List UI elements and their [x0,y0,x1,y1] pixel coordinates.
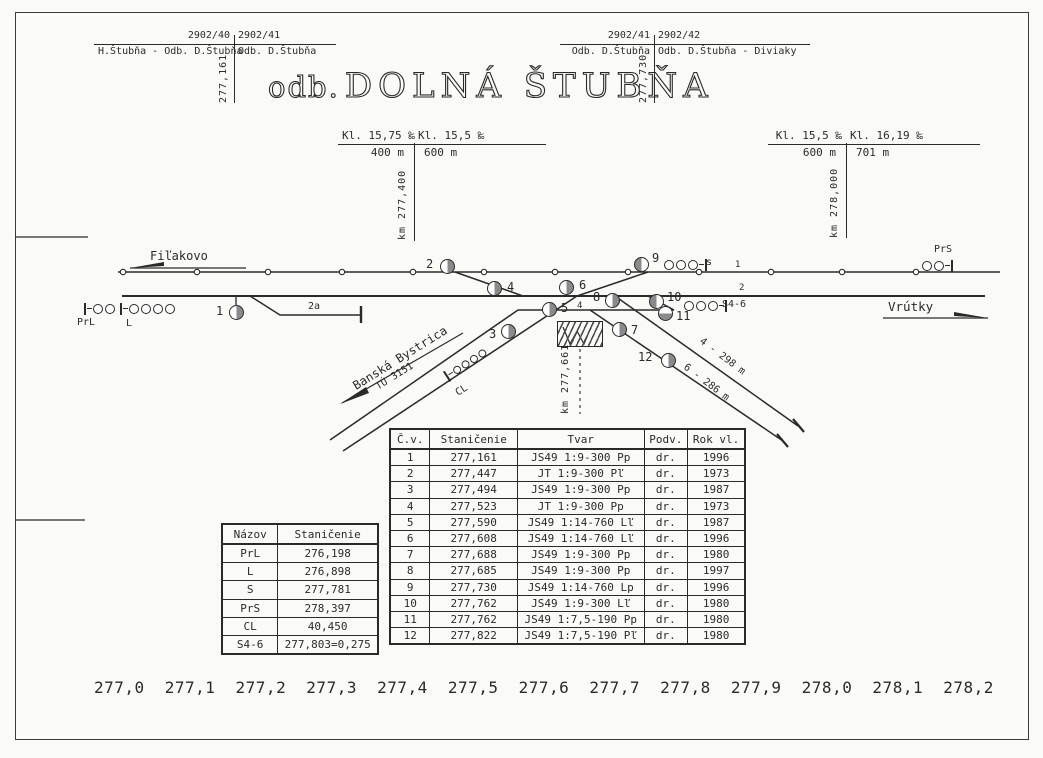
table-cell: JS49 1:7,5-190 Pľ [518,628,645,645]
signal-table: NázovStaničeniePrL276,198L276,898S277,78… [221,523,379,655]
signal-lamp [676,260,686,270]
title-name: DOLNÁ ŠTUBŇA [345,66,714,106]
signal-l-label: L [126,319,132,329]
km-scale-label: 278,2 [943,678,994,697]
switch-symbol-7 [612,322,627,337]
table-row: 6277,608JS49 1:14-760 Lľdr.1996 [390,530,745,546]
switch-number: 10 [667,291,681,303]
table-cell: S4-6 [222,635,278,654]
km-scale-label: 277,2 [236,678,287,697]
km-scale-label: 277,1 [165,678,216,697]
table-cell: 6 [390,530,430,546]
signal-lamp [664,260,674,270]
column-header: Č.v. [390,429,430,449]
table-cell: 1997 [688,563,745,579]
switch-number: 2 [426,258,433,270]
switch-table: Č.v.StaničenieTvarPodv.Rok vl.1277,161JS… [389,428,746,645]
table-cell: 1987 [688,482,745,498]
table-cell: 1996 [688,449,745,466]
signal-lamp [93,304,103,314]
table-row: 10277,762JS49 1:9-300 Lľdr.1980 [390,595,745,611]
switch-number: 5 [561,302,568,314]
signal-lamp [934,261,944,271]
gradient-length: 600 m [414,145,546,161]
signal-lamp [141,304,151,314]
gradient-value: Kl. 15,75 ‰ [338,128,414,145]
switch-number: 1 [216,305,223,317]
table-cell: dr. [644,628,688,645]
data-table: NázovStaničeniePrL276,198L276,898S277,78… [221,523,379,655]
gradient-marker-right: Kl. 15,5 ‰ Kl. 16,19 ‰ 600 m 701 m km 27… [768,128,980,161]
signal-mast [84,303,86,315]
route-number: 2902/41 [234,29,336,45]
km-scale-label: 277,9 [731,678,782,697]
header-row: Č.v.StaničenieTvarPodv.Rok vl. [390,429,745,449]
signal-l [120,302,175,315]
table-cell: JT 1:9-300 Pp [518,498,645,514]
route-number: 2902/42 [654,29,810,45]
route-boundary-line [234,35,235,103]
arrow-east-head [954,312,988,318]
table-cell: 3 [390,482,430,498]
km-scale-label: 277,0 [94,678,145,697]
table-cell: 7 [390,547,430,563]
signal-lamp [688,260,698,270]
level-crossing-km: km 277,661 [560,352,571,414]
buffer-stop-stub6 [777,434,788,447]
margin-ticks [15,237,88,520]
table-cell: 277,685 [430,563,518,579]
table-cell: 277,762 [430,611,518,627]
track-label-4: 4 [577,302,582,311]
signal-prs-label: PrS [934,245,952,255]
table-cell: 1980 [688,611,745,627]
signal-lamp [105,304,115,314]
signal-arm [87,308,92,310]
table-cell: dr. [644,611,688,627]
switch-symbol-1 [229,305,244,320]
table-cell: 1996 [688,579,745,595]
table-cell: 1973 [688,498,745,514]
table-row: PrS278,397 [222,599,378,617]
switch-symbol-12 [661,353,676,368]
direction-east-label: Vrútky [888,301,933,314]
route-marker-left: 2902/40 2902/41 H.Štubňa - Odb. D.Štubňa… [94,29,336,59]
table-cell: 277,494 [430,482,518,498]
gradient-break-km: km 278,000 [829,154,840,238]
table-cell: 1980 [688,547,745,563]
table-cell: 8 [390,563,430,579]
table-cell: 11 [390,611,430,627]
signal-mast [120,303,122,315]
track-label-line2: 2 [739,284,744,293]
table-row: L276,898 [222,563,378,581]
table-row: 12277,822JS49 1:7,5-190 Pľdr.1980 [390,628,745,645]
switch-symbol-8 [605,293,620,308]
column-header: Tvar [518,429,645,449]
table-row: 9277,730JS49 1:14-760 Lpdr.1996 [390,579,745,595]
switch-number: 4 [507,281,514,293]
route-number: 2902/40 [94,29,234,45]
signal-arm [699,264,704,266]
table-cell: 1996 [688,530,745,546]
table-cell: 277,608 [430,530,518,546]
table-cell: L [222,563,278,581]
gradient-value: Kl. 15,5 ‰ [414,128,546,145]
gradient-value: Kl. 15,5 ‰ [768,128,846,145]
table-row: PrL276,198 [222,544,378,563]
signal-lamp [165,304,175,314]
km-scale-label: 277,7 [589,678,640,697]
table-row: S277,781 [222,581,378,599]
column-header: Staničenie [430,429,518,449]
table-cell: JS49 1:9-300 Pp [518,563,645,579]
table-cell: dr. [644,547,688,563]
signal-prs [922,259,953,272]
table-cell: PrL [222,544,278,563]
table-cell: 277,688 [430,547,518,563]
switch-symbol-3 [501,324,516,339]
signal-lamp [708,301,718,311]
signal-lamp [922,261,932,271]
signal-lamp [129,304,139,314]
signal-mast [951,260,953,272]
table-row: 11277,762JS49 1:7,5-190 Ppdr.1980 [390,611,745,627]
table-cell: JS49 1:9-300 Pp [518,449,645,466]
km-scale-label: 277,3 [306,678,357,697]
switch-number: 11 [676,310,690,322]
signal-arm [448,371,453,375]
table-cell: S [222,581,278,599]
table-cell: dr. [644,530,688,546]
table-cell: 1 [390,449,430,466]
gradient-break-km: km 277,400 [397,154,408,240]
signal-s [664,258,707,271]
table-cell: 1980 [688,628,745,645]
signal-s-label: s [706,258,712,268]
km-scale: 277,0 277,1 277,2 277,3 277,4 277,5 277,… [94,678,994,697]
table-cell: JS49 1:9-300 Pp [518,547,645,563]
table-cell: 1973 [688,466,745,482]
column-header: Staničenie [278,524,378,544]
km-scale-label: 278,0 [802,678,853,697]
switch-symbol-6 [559,280,574,295]
table-cell: PrS [222,599,278,617]
table-cell: 9 [390,579,430,595]
table-cell: 278,397 [278,599,378,617]
table-cell: 40,450 [278,617,378,635]
data-table: Č.v.StaničenieTvarPodv.Rok vl.1277,161JS… [389,428,746,645]
table-cell: 277,762 [430,595,518,611]
signal-arm [123,308,128,310]
table-cell: JS49 1:9-300 Lľ [518,595,645,611]
buffer-stop-stub4 [793,419,804,432]
table-cell: 277,781 [278,581,378,599]
table-row: 2277,447JT 1:9-300 Pľdr.1973 [390,466,745,482]
table-cell: 10 [390,595,430,611]
signal-prl-label: PrL [77,318,95,328]
header-row: NázovStaničenie [222,524,378,544]
table-row: 7277,688JS49 1:9-300 Ppdr.1980 [390,547,745,563]
direction-west-label: Fiľakovo [150,250,208,262]
switch-number: 8 [593,291,600,303]
switch-symbol-4 [487,281,502,296]
table-cell: 277,590 [430,514,518,530]
table-cell: dr. [644,514,688,530]
table-row: S4-6277,803=0,275 [222,635,378,654]
km-scale-label: 278,1 [872,678,923,697]
route-name: Odb. D.Štubňa [234,45,336,60]
table-cell: dr. [644,449,688,466]
km-scale-label: 277,5 [448,678,499,697]
switch-number: 12 [638,351,652,363]
siding-2a-track [250,296,360,315]
table-cell: 1980 [688,595,745,611]
table-cell: 277,822 [430,628,518,645]
switch-symbol-11 [658,306,673,321]
signal-arm [945,265,950,267]
table-cell: JS49 1:14-760 Lľ [518,530,645,546]
table-cell: 276,898 [278,563,378,581]
table-row: CL40,450 [222,617,378,635]
switch-symbol-5 [542,302,557,317]
table-cell: 276,198 [278,544,378,563]
table-cell: 1987 [688,514,745,530]
km-scale-label: 277,4 [377,678,428,697]
table-row: 8277,685JS49 1:9-300 Ppdr.1997 [390,563,745,579]
switch-number: 6 [579,279,586,291]
route-marker-right: 2902/41 2902/42 Odb. D.Štubňa Odb. D.Štu… [560,29,810,59]
km-scale-label: 277,6 [519,678,570,697]
table-cell: 277,161 [430,449,518,466]
table-cell: JS49 1:14-760 Lp [518,579,645,595]
column-header: Podv. [644,429,688,449]
table-row: 3277,494JS49 1:9-300 Ppdr.1987 [390,482,745,498]
track-label-line1: 1 [735,261,740,270]
column-header: Názov [222,524,278,544]
gradient-marker-left: Kl. 15,75 ‰ Kl. 15,5 ‰ 400 m 600 m km 27… [338,128,546,161]
table-cell: dr. [644,498,688,514]
table-row: 1277,161JS49 1:9-300 Ppdr.1996 [390,449,745,466]
table-cell: JT 1:9-300 Pľ [518,466,645,482]
km-scale-label: 277,8 [660,678,711,697]
table-cell: dr. [644,579,688,595]
table-cell: JS49 1:14-760 Lľ [518,514,645,530]
signal-s4-6-label: S4-6 [722,300,746,310]
switch-symbol-2 [440,259,455,274]
table-cell: 12 [390,628,430,645]
page-title: odb. DOLNÁ ŠTUBŇA [268,66,692,106]
table-cell: 4 [390,498,430,514]
table-cell: JS49 1:9-300 Pp [518,482,645,498]
table-row: 5277,590JS49 1:14-760 Lľdr.1987 [390,514,745,530]
signal-prl [84,302,115,315]
gradient-value: Kl. 16,19 ‰ [846,128,980,145]
signal-lamp [153,304,163,314]
route-name: H.Štubňa - Odb. D.Štubňa [94,45,234,60]
title-prefix: odb. [268,70,340,104]
table-cell: 277,523 [430,498,518,514]
route-number: 2902/41 [560,29,654,45]
signal-lamp [696,301,706,311]
switch-number: 3 [489,328,496,340]
table-cell: JS49 1:7,5-190 Pp [518,611,645,627]
table-cell: dr. [644,466,688,482]
route-name: Odb. D.Štubňa - Diviaky [654,45,810,60]
table-row: 4277,523JT 1:9-300 Ppdr.1973 [390,498,745,514]
table-cell: CL [222,617,278,635]
switch-number: 9 [652,252,659,264]
track-label-2a: 2a [308,302,320,312]
table-cell: dr. [644,595,688,611]
table-cell: dr. [644,563,688,579]
column-header: Rok vl. [688,429,745,449]
table-cell: 2 [390,466,430,482]
table-cell: 277,447 [430,466,518,482]
table-cell: 277,803=0,275 [278,635,378,654]
gradient-length: 701 m [846,145,980,161]
table-cell: 277,730 [430,579,518,595]
gradient-break-line [846,143,847,238]
station-schematic-sheet: 2902/40 2902/41 H.Štubňa - Odb. D.Štubňa… [0,0,1043,758]
route-boundary-km: 277,161 [218,53,229,103]
switch-number: 7 [631,324,638,336]
table-cell: dr. [644,482,688,498]
table-cell: 5 [390,514,430,530]
switch-symbol-9 [634,257,649,272]
gradient-break-line [414,143,415,241]
